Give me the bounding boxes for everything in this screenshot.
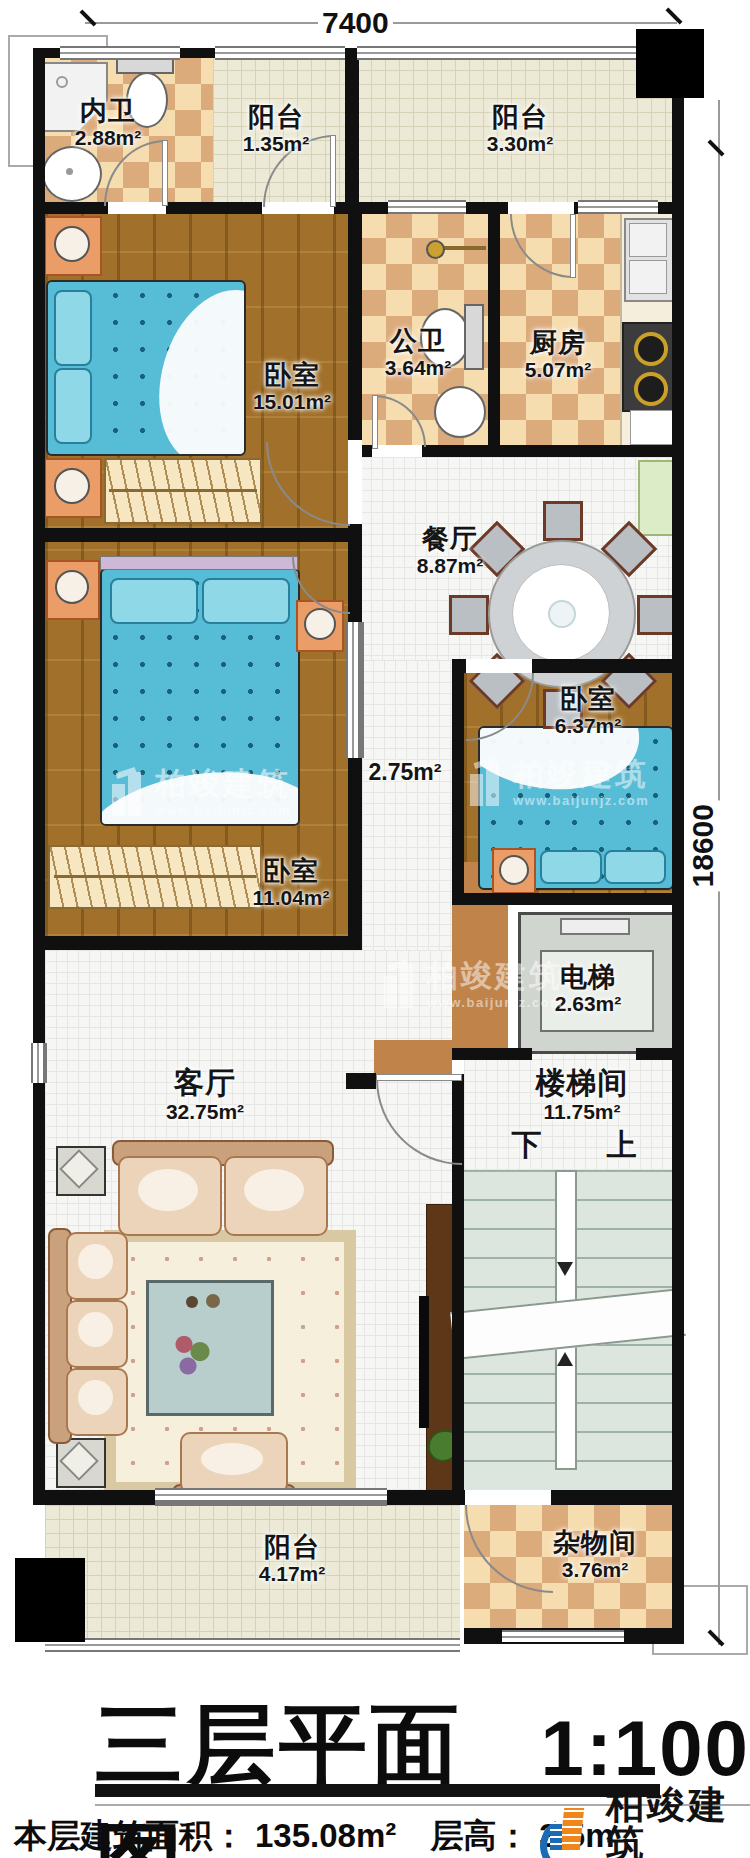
coffee-table-item [206, 1294, 220, 1308]
window [60, 46, 180, 60]
footer-area-label: 本层建筑面积： [14, 1814, 245, 1858]
room-label-living: 客厅 32.75m² [145, 1066, 265, 1123]
door-gap [348, 440, 362, 524]
floor-plan-sheet: 内卫 2.88m² 阳台 1.35m² 阳台 3.30m² 卧室 15.01m²… [0, 0, 750, 1858]
room-label-gongwei: 公卫 3.64m² [362, 326, 474, 380]
window [31, 1043, 47, 1083]
wall [33, 528, 348, 542]
kitchen-sink-basin [629, 223, 667, 257]
kitchen-sink-basin [629, 260, 667, 294]
pillow [604, 850, 666, 884]
wall [33, 1490, 155, 1505]
window [45, 1638, 460, 1652]
wardrobe [104, 458, 262, 524]
wall [672, 1490, 684, 1644]
footer-info: 本层建筑面积： 135.08m² 层高： 3.5m [14, 1814, 614, 1858]
wall [33, 48, 45, 1505]
wall [551, 1490, 684, 1505]
dining-plate-ring [548, 600, 576, 628]
elevator-door [560, 918, 630, 935]
brand-name: 柏竣建筑 [606, 1786, 750, 1858]
watermark: 柏竣建筑www.baijunjz.com [384, 960, 563, 1010]
wall [346, 1073, 376, 1089]
dimension-width: 7400 [318, 6, 393, 40]
speaker [56, 1146, 106, 1196]
room-label-neiwei: 内卫 2.88m² [58, 96, 158, 150]
tan-threshold [374, 1040, 452, 1074]
column [636, 29, 704, 98]
sofa-cushion [118, 1156, 222, 1236]
room-label-dining: 餐厅 8.87m² [388, 524, 512, 578]
sink [434, 386, 486, 438]
room-label-bedroom-w: 卧室 11.04m² [228, 856, 354, 910]
pillow [202, 578, 290, 624]
wall [387, 1490, 465, 1505]
headboard [100, 556, 298, 570]
dimension-tick [708, 140, 725, 157]
building-logo-icon [112, 770, 146, 816]
dining-chair [449, 595, 489, 635]
tv-screen [419, 1296, 429, 1428]
towel-bar-knob [426, 240, 445, 259]
door-gap [508, 202, 574, 214]
window [346, 622, 364, 758]
room-label-storage: 杂物间 3.76m² [522, 1528, 668, 1582]
room-label-kitchen: 厨房 5.07m² [502, 328, 614, 382]
pillow [54, 368, 92, 444]
lamp [55, 570, 89, 604]
sofa-cushion [66, 1300, 128, 1368]
sofa-cushion [66, 1232, 128, 1300]
window [502, 1630, 624, 1642]
brand-logo: 柏竣建筑 www.baijunjz.com [538, 1786, 750, 1858]
window [155, 1488, 387, 1506]
stair-up-label: 上 [600, 1128, 644, 1162]
stove-burner [634, 332, 668, 366]
stair-arrow [557, 1352, 573, 1366]
room-label-balcony-s: 阳台 4.17m² [232, 1532, 352, 1586]
window [388, 200, 466, 214]
wall [672, 48, 684, 1505]
wall [345, 48, 359, 212]
pillow [54, 290, 92, 366]
shower-drain [56, 76, 68, 88]
sink-drain [66, 168, 73, 175]
dining-chair [637, 595, 677, 635]
dimension-height: 18600 [686, 800, 720, 891]
armchair [180, 1432, 288, 1494]
door-leaf [570, 214, 576, 278]
sofa-cushion [224, 1156, 328, 1236]
room-label-bedroom-e: 卧室 6.37m² [528, 684, 648, 738]
door-leaf [376, 1074, 462, 1081]
lamp [499, 855, 529, 885]
coffee-table-flowers [172, 1330, 212, 1378]
wall [636, 1048, 684, 1060]
door-gap [466, 659, 532, 673]
dining-chair [543, 501, 583, 541]
wall [452, 1048, 532, 1060]
stair-arrow [557, 1262, 573, 1276]
room-label-hall: 2.75m² [345, 760, 465, 786]
coffee-table-item [186, 1296, 198, 1308]
speaker [56, 1438, 106, 1488]
building-logo-icon [470, 760, 504, 806]
stove-burner [634, 372, 668, 406]
stair-down-label: 下 [505, 1128, 549, 1162]
watermark: 柏竣建筑www.baijunjz.com [470, 758, 649, 808]
room-label-balcony-ne: 阳台 3.30m² [460, 102, 580, 156]
lamp [54, 468, 90, 504]
door-leaf [162, 140, 168, 206]
wall [452, 893, 684, 905]
sink [42, 146, 102, 202]
room-label-balcony-nw: 阳台 1.35m² [216, 102, 336, 156]
lamp [54, 226, 90, 262]
building-logo-icon [538, 1806, 596, 1858]
room-label-bedroom-nw: 卧室 15.01m² [230, 360, 354, 414]
column [15, 1558, 85, 1642]
footer-height-label: 层高： [430, 1814, 529, 1858]
pillow [110, 578, 198, 624]
wall [488, 212, 500, 445]
room-label-stairwell: 楼梯间 11.75m² [510, 1066, 654, 1123]
window [215, 46, 345, 60]
kitchen-corner-unit [630, 410, 674, 445]
lamp [304, 608, 336, 640]
door-leaf [372, 395, 378, 449]
window [357, 46, 673, 60]
building-logo-icon [384, 962, 418, 1008]
window [578, 200, 658, 214]
watermark: 柏竣建筑www.baijunjz.com [112, 768, 291, 818]
sofa-cushion [66, 1368, 128, 1436]
pillow [540, 850, 602, 884]
wall [33, 936, 348, 950]
footer-area-value: 135.08m² [255, 1817, 396, 1855]
title-scale: 1:100 [541, 1703, 750, 1794]
door-gap [465, 1490, 551, 1505]
